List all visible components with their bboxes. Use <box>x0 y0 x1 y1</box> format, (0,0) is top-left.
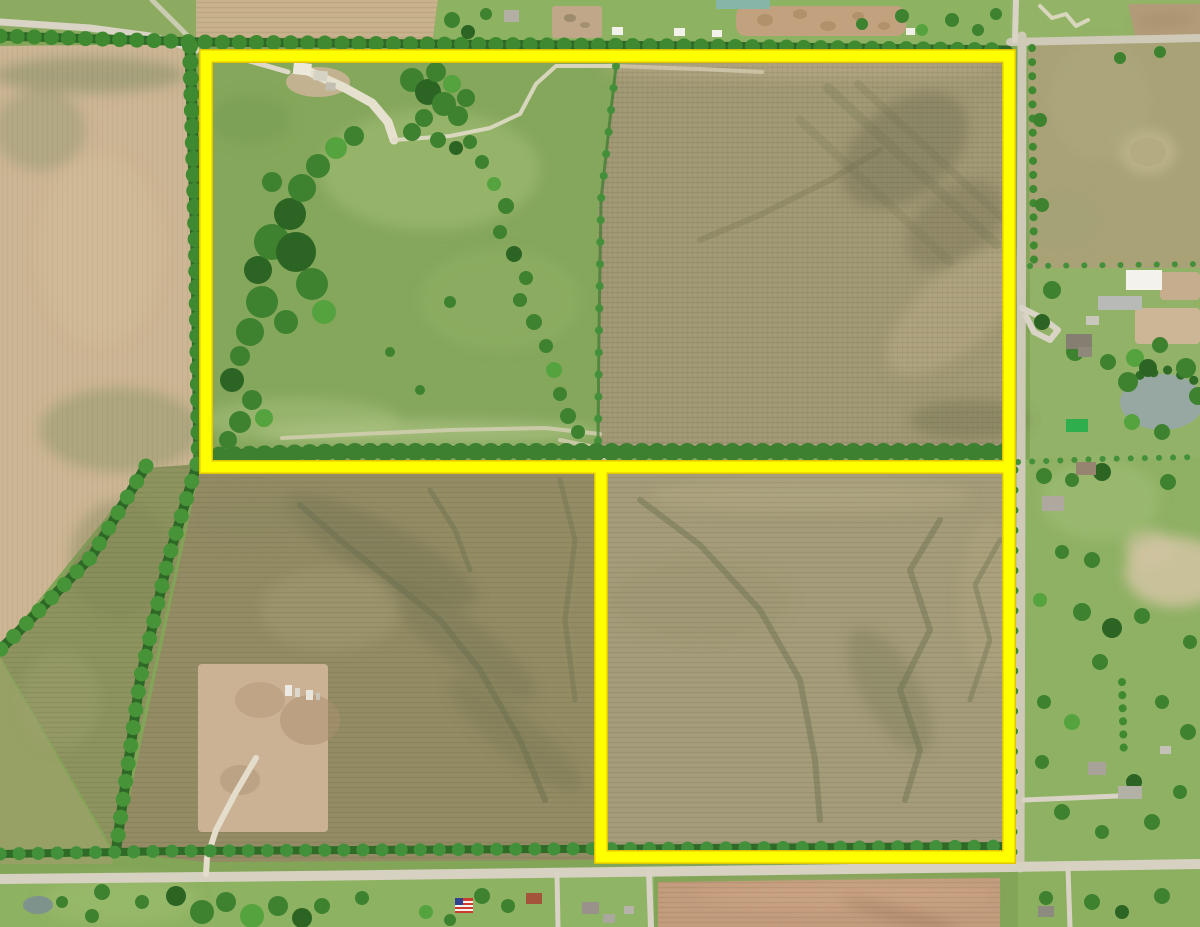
trees-56 <box>990 8 1002 20</box>
lane-bottom-3 <box>1068 868 1070 927</box>
trees-46 <box>415 385 425 395</box>
trees-99 <box>216 892 236 912</box>
pad-truck-2 <box>295 688 300 697</box>
trees-59 <box>1114 52 1126 64</box>
trees-71 <box>1154 424 1170 440</box>
trees-10 <box>296 268 328 300</box>
treeline-left-dots <box>190 46 199 462</box>
trees-19 <box>219 431 237 449</box>
top-shed-white-1 <box>612 27 623 35</box>
farm-top-shed-2 <box>313 70 328 81</box>
trees-5 <box>288 174 316 202</box>
bottom-house-red <box>526 893 542 904</box>
trees-64 <box>1100 354 1116 370</box>
trees-37 <box>519 271 533 285</box>
right-yard-dirt <box>1160 272 1200 300</box>
lot-debris-2 <box>580 22 590 28</box>
trees-91 <box>1173 785 1187 799</box>
trees-66 <box>1152 337 1168 353</box>
trees-42 <box>553 387 567 401</box>
trees-69 <box>1176 358 1196 378</box>
lot-debris-1 <box>564 14 576 22</box>
trees-62 <box>1034 314 1050 330</box>
trees-103 <box>314 898 330 914</box>
trees-107 <box>85 909 99 923</box>
trees-14 <box>230 346 250 366</box>
trees-109 <box>419 905 433 919</box>
trees-31 <box>463 135 477 149</box>
flag-shed-stripe-2 <box>455 905 473 907</box>
farm-top-shed-1 <box>293 62 312 76</box>
top-shed-white-3 <box>712 30 722 37</box>
trees-67 <box>1118 372 1138 392</box>
trees-24 <box>426 62 446 82</box>
trees-7 <box>325 137 347 159</box>
till-southeast <box>604 468 1006 856</box>
pad-equipment <box>316 693 320 700</box>
right-house-765 <box>1088 762 1106 775</box>
trees-114 <box>1039 891 1053 905</box>
pad-truck-3 <box>306 690 313 700</box>
trees-43 <box>560 408 576 424</box>
trees-111 <box>1084 894 1100 910</box>
trees-45 <box>385 347 395 357</box>
trees-61 <box>1043 281 1061 299</box>
dirt-circle-3 <box>820 21 836 31</box>
trees-49 <box>461 25 475 39</box>
trees-95 <box>94 884 110 900</box>
trees-35 <box>493 225 507 239</box>
trees-96 <box>135 895 149 909</box>
trees-36 <box>506 246 522 262</box>
trees-15 <box>220 368 244 392</box>
trees-108 <box>56 896 68 908</box>
bottom-shed-1 <box>603 914 615 923</box>
trees-72 <box>1124 414 1140 430</box>
bottom-house-gray <box>582 902 599 914</box>
top-shed-white-2 <box>674 28 685 36</box>
trees-13 <box>262 172 282 192</box>
right-arena-dirt <box>1135 308 1200 344</box>
right-barn-white <box>1126 270 1162 290</box>
right-barn-gray <box>1098 296 1142 310</box>
trees-101 <box>268 896 288 916</box>
till-bottom-pink <box>658 878 1000 927</box>
trees-17 <box>229 411 251 433</box>
right-dry-light <box>1050 40 1150 160</box>
top-ruin-shed <box>504 10 519 22</box>
trees-11 <box>312 300 336 324</box>
trees-25 <box>443 75 461 93</box>
trees-18 <box>255 409 273 427</box>
lane-bottom-2 <box>649 872 651 927</box>
right-sandy-2 <box>1125 530 1175 566</box>
road-right-vertical <box>1020 36 1022 868</box>
right-barn-790 <box>1118 786 1142 799</box>
farm-top-shed-3 <box>325 82 336 91</box>
trees-98 <box>190 900 214 924</box>
trees-40 <box>539 339 553 353</box>
trees-38 <box>513 293 527 307</box>
trees-33 <box>487 177 501 191</box>
trees-55 <box>972 24 984 36</box>
aerial-parcel-photo <box>0 0 1200 927</box>
pad-truck-1 <box>285 685 292 696</box>
treeline-right-mid-vert <box>1122 682 1124 760</box>
lane-bottom-1 <box>557 873 558 927</box>
pad-patch-1 <box>280 695 340 745</box>
bottom-shed-2 <box>624 906 634 914</box>
trees-82 <box>1134 608 1150 624</box>
pond-bottom-left <box>23 896 53 914</box>
dry-circle-mark <box>1130 138 1166 166</box>
right-house-wing <box>1078 347 1092 357</box>
trees-34 <box>498 198 514 214</box>
trees-2 <box>244 256 272 284</box>
trees-110 <box>444 914 456 926</box>
trees-83 <box>1092 654 1108 670</box>
trees-52 <box>895 9 909 23</box>
trees-60 <box>1154 46 1166 58</box>
trees-94 <box>1144 814 1160 830</box>
top-dirt-lot <box>552 6 602 38</box>
trees-28 <box>403 123 421 141</box>
trees-27 <box>415 109 433 127</box>
trees-8 <box>344 126 364 146</box>
aerial-canvas <box>0 0 1200 927</box>
trees-87 <box>1155 695 1169 709</box>
trees-16 <box>242 390 262 410</box>
trees-84 <box>1183 635 1197 649</box>
trees-86 <box>1064 714 1080 730</box>
trees-88 <box>1180 724 1196 740</box>
right-court-green <box>1066 419 1088 432</box>
trees-41 <box>546 362 562 378</box>
trees-112 <box>1115 905 1129 919</box>
trees-12 <box>274 310 298 334</box>
trees-26 <box>457 89 475 107</box>
trees-80 <box>1073 603 1091 621</box>
trees-4 <box>274 198 306 230</box>
right-house-main <box>1066 334 1092 349</box>
trees-100 <box>240 904 264 927</box>
trees-0 <box>236 318 264 346</box>
trees-58 <box>1035 198 1049 212</box>
trees-113 <box>1154 888 1170 904</box>
dirt-circle-1 <box>757 14 773 26</box>
trees-50 <box>480 8 492 20</box>
trees-92 <box>1054 804 1070 820</box>
right-shed-748 <box>1160 746 1171 754</box>
trees-6 <box>306 154 330 178</box>
road-top-right-north <box>1015 0 1016 40</box>
trees-30 <box>449 141 463 155</box>
trees-97 <box>166 886 186 906</box>
trees-54 <box>945 13 959 27</box>
trees-48 <box>444 12 460 28</box>
bottom-right-house <box>1038 906 1054 917</box>
trees-106 <box>501 899 515 913</box>
trees-81 <box>1102 618 1122 638</box>
treeline-creek-dots <box>204 452 1005 456</box>
trees-85 <box>1037 695 1051 709</box>
trees-29 <box>430 132 446 148</box>
trees-1 <box>246 286 278 318</box>
dirt-circle-5 <box>878 22 890 30</box>
trees-57 <box>1033 113 1047 127</box>
trees-89 <box>1035 755 1049 769</box>
trees-77 <box>1055 545 1069 559</box>
trees-47 <box>444 296 456 308</box>
pad-patch-2 <box>235 682 285 718</box>
trees-44 <box>571 425 585 439</box>
top-teal-building <box>716 0 770 9</box>
dirt-circle-2 <box>793 9 807 19</box>
trees-39 <box>526 314 542 330</box>
right-house-465 <box>1076 462 1096 475</box>
trees-93 <box>1095 825 1109 839</box>
trees-104 <box>355 891 369 905</box>
trees-78 <box>1084 552 1100 568</box>
till-southwest <box>118 468 598 862</box>
flag-shed-canton <box>455 898 463 905</box>
trees-68 <box>1139 359 1157 377</box>
trees-105 <box>474 888 490 904</box>
trees-53 <box>916 24 928 36</box>
trees-23 <box>448 106 468 126</box>
flag-shed-stripe-3 <box>455 909 473 911</box>
top-shed-white-4 <box>906 28 915 35</box>
trees-51 <box>856 18 868 30</box>
pasture-dark <box>208 94 292 146</box>
road-top-right <box>1010 38 1200 42</box>
pasture-mow-2 <box>420 250 580 350</box>
right-shed-small <box>1086 316 1099 325</box>
trees-79 <box>1033 593 1047 607</box>
trees-73 <box>1036 468 1052 484</box>
trees-9 <box>276 232 316 272</box>
trees-74 <box>1065 473 1079 487</box>
trees-32 <box>475 155 489 169</box>
trees-76 <box>1160 474 1176 490</box>
right-house-498 <box>1042 496 1064 511</box>
